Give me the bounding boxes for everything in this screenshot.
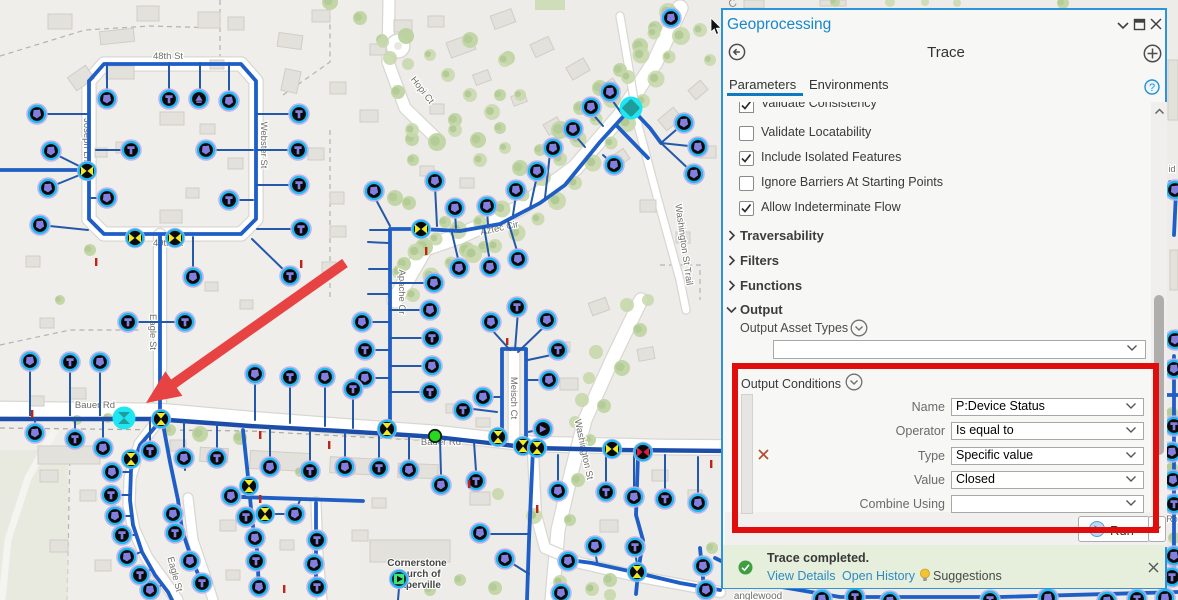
svg-text:id: id <box>1168 164 1175 174</box>
svg-text:Webster St: Webster St <box>258 122 269 169</box>
svg-text:Cornerstone: Cornerstone <box>387 558 447 569</box>
svg-text:48th St: 48th St <box>153 51 183 62</box>
svg-text:?: ? <box>1149 82 1155 94</box>
svg-text:Eagle St: Eagle St <box>147 314 158 350</box>
svg-text:Ro: Ro <box>1166 514 1178 524</box>
svg-text:Bauer Rd: Bauer Rd <box>75 400 115 411</box>
svg-text:anglewood: anglewood <box>734 591 782 600</box>
svg-text:Meisch Ct: Meisch Ct <box>508 377 519 420</box>
svg-text:Apache Cr: Apache Cr <box>396 270 407 315</box>
